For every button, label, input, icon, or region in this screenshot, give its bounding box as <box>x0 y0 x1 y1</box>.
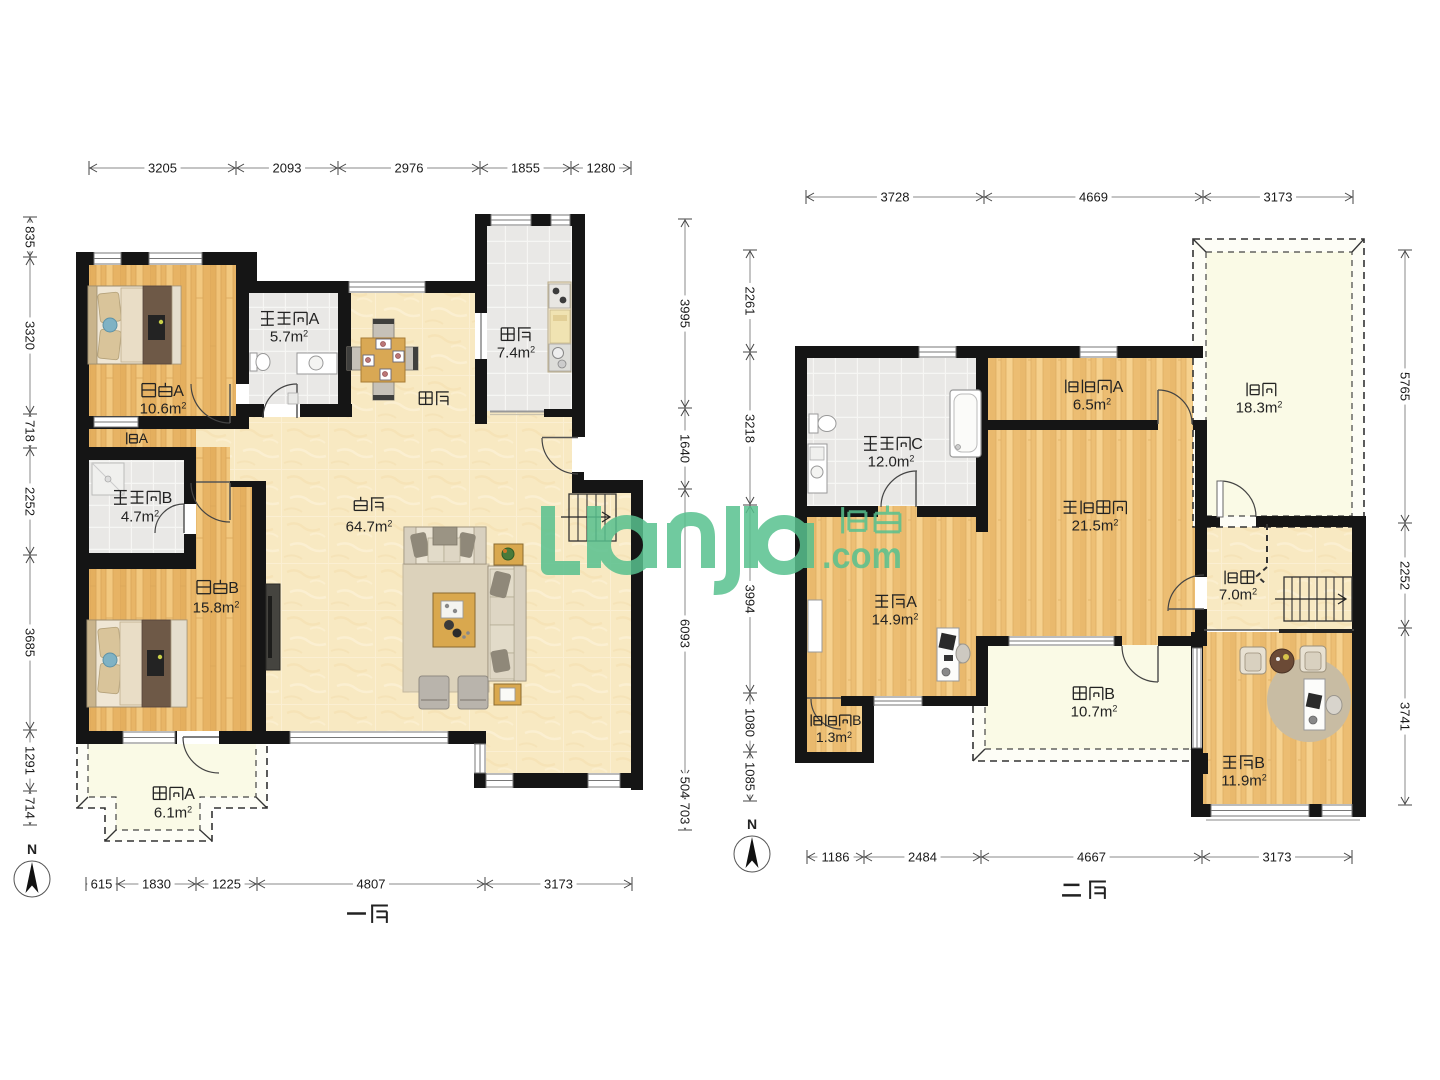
svg-text:4.7m2: 4.7m2 <box>121 508 159 525</box>
svg-text:615: 615 <box>91 877 113 892</box>
svg-text:15.8m2: 15.8m2 <box>193 599 240 616</box>
svg-text:2261: 2261 <box>742 287 757 316</box>
svg-text:B: B <box>852 712 861 728</box>
svg-text:21.5m2: 21.5m2 <box>1072 517 1119 534</box>
svg-text:3685: 3685 <box>22 628 37 657</box>
svg-text:2252: 2252 <box>22 487 37 516</box>
svg-text:B: B <box>1254 755 1265 772</box>
svg-text:1.3m2: 1.3m2 <box>816 729 852 745</box>
svg-text:6.5m2: 6.5m2 <box>1073 396 1111 413</box>
svg-text:1640: 1640 <box>677 434 692 463</box>
svg-text:N: N <box>747 816 757 832</box>
svg-text:3995: 3995 <box>677 299 692 328</box>
svg-text:A: A <box>184 786 195 803</box>
svg-text:7.4m2: 7.4m2 <box>497 344 535 361</box>
svg-text:12.0m2: 12.0m2 <box>868 453 915 470</box>
svg-text:A: A <box>906 594 917 611</box>
svg-text:2252: 2252 <box>1397 561 1412 590</box>
svg-text:714: 714 <box>22 797 37 819</box>
svg-text:14.9m2: 14.9m2 <box>872 611 919 628</box>
svg-text:B: B <box>162 490 173 507</box>
svg-text:A: A <box>139 430 149 446</box>
svg-text:.com: .com <box>822 535 902 576</box>
svg-text:5.7m2: 5.7m2 <box>270 328 308 345</box>
svg-text:N: N <box>27 841 37 857</box>
svg-text:6093: 6093 <box>677 619 692 648</box>
svg-text:2093: 2093 <box>273 161 302 176</box>
svg-text:6.1m2: 6.1m2 <box>154 804 192 821</box>
svg-text:B: B <box>1104 686 1115 703</box>
svg-text:11.9m2: 11.9m2 <box>1221 772 1267 789</box>
svg-text:3205: 3205 <box>148 161 177 176</box>
svg-text:B: B <box>228 580 239 597</box>
svg-text:18.3m2: 18.3m2 <box>1236 399 1283 416</box>
svg-text:3728: 3728 <box>881 190 910 205</box>
svg-text:835: 835 <box>22 226 37 248</box>
svg-text:718: 718 <box>22 420 37 442</box>
svg-text:4667: 4667 <box>1077 850 1106 865</box>
svg-text:4807: 4807 <box>357 877 386 892</box>
svg-text:1085: 1085 <box>742 762 757 791</box>
svg-text:7.0m2: 7.0m2 <box>1219 586 1257 603</box>
svg-text:10.6m2: 10.6m2 <box>140 400 187 417</box>
svg-text:A: A <box>1113 379 1124 396</box>
svg-text:10.7m2: 10.7m2 <box>1071 703 1118 720</box>
svg-text:3173: 3173 <box>1263 850 1292 865</box>
svg-text:504: 504 <box>677 777 692 799</box>
svg-text:1080: 1080 <box>742 708 757 737</box>
svg-text:3173: 3173 <box>1264 190 1293 205</box>
svg-text:2484: 2484 <box>908 850 937 865</box>
svg-text:A: A <box>309 311 320 328</box>
svg-text:5765: 5765 <box>1397 372 1412 401</box>
svg-text:3218: 3218 <box>742 414 757 443</box>
svg-text:703: 703 <box>677 803 692 825</box>
svg-text:3994: 3994 <box>742 585 757 614</box>
svg-text:1186: 1186 <box>822 850 850 865</box>
svg-text:C: C <box>911 436 923 453</box>
svg-text:2976: 2976 <box>395 161 424 176</box>
svg-text:1280: 1280 <box>587 161 616 176</box>
svg-text:3741: 3741 <box>1397 702 1412 731</box>
svg-text:3320: 3320 <box>22 321 37 350</box>
svg-text:64.7m2: 64.7m2 <box>346 518 393 535</box>
svg-text:4669: 4669 <box>1079 190 1108 205</box>
svg-text:1291: 1291 <box>22 746 37 775</box>
svg-text:3173: 3173 <box>544 877 573 892</box>
svg-text:A: A <box>173 383 184 400</box>
svg-text:1855: 1855 <box>511 161 540 176</box>
svg-text:1830: 1830 <box>142 877 171 892</box>
svg-text:1225: 1225 <box>212 877 241 892</box>
